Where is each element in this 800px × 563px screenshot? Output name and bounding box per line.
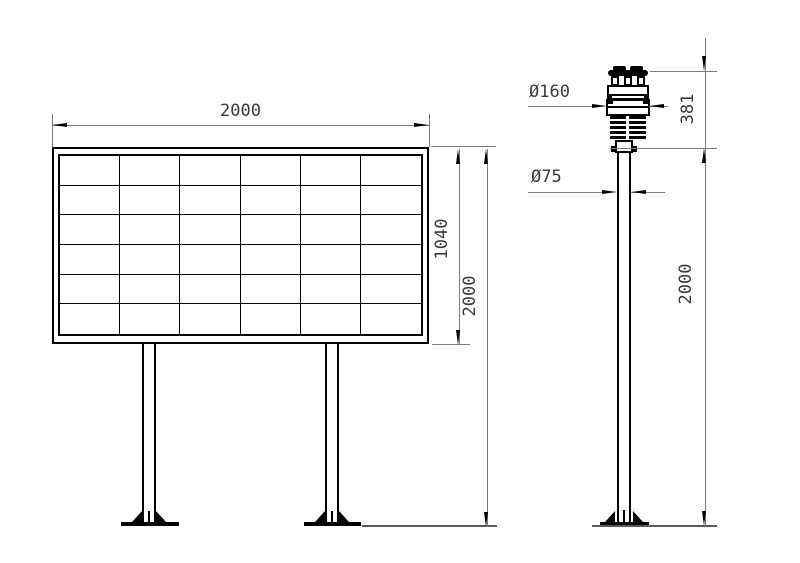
dim-arrow [702,56,706,71]
panel-grid-cell [301,156,361,186]
dim-extension-line [432,344,470,345]
panel-grid-cell [60,156,120,186]
dim-label-total-height: 2000 [461,264,479,328]
panel-grid-cell [241,186,301,216]
anchor-bolt [623,510,625,522]
dim-arrow [602,190,617,194]
sensor-tab [643,100,648,104]
sensor-tab [633,146,637,152]
anchor-bolt [148,511,150,522]
panel-grid-cell [60,275,120,305]
panel-grid-cell [241,245,301,275]
panel-grid-cell [180,186,240,216]
dim-line-sensor-pole [705,38,706,527]
ground-line [592,525,717,527]
panel-grid-cell [180,304,240,334]
panel-grid-cell [180,215,240,245]
louver-center-slot [626,116,629,140]
panel-grid-cell [301,215,361,245]
dim-label-sensor-diameter: Ø160 [529,83,570,101]
dim-extension-line [429,114,430,147]
panel-leg-left [142,344,156,523]
panel-grid-cell [241,156,301,186]
gusset [605,511,615,522]
dim-extension-line [650,71,717,72]
panel-grid-cell [361,275,421,305]
panel-grid-cell [120,275,180,305]
sensor-tab [608,100,613,104]
panel-grid-cell [361,215,421,245]
panel-grid-cell [120,156,180,186]
dim-leader-line [528,106,593,107]
gusset [132,511,142,522]
gusset [633,511,643,522]
base-plate-right [304,522,361,526]
dim-arrow [631,190,646,194]
panel-grid-cell [60,304,120,334]
panel-grid-cell [120,215,180,245]
dim-arrow [456,149,460,164]
panel-grid-cell [301,304,361,334]
panel-grid-cell [120,245,180,275]
dim-label-sensor-height: 381 [679,77,697,141]
panel-grid-cell [60,215,120,245]
ground-line [362,525,497,527]
dim-arrow [414,123,429,127]
sensor-pole [617,153,631,522]
dim-arrow [702,511,706,526]
dim-arrow [592,104,607,108]
panel-grid [58,154,423,336]
technical-drawing-canvas: 2000 1040 2000 [0,0,800,563]
panel-grid-cell [120,186,180,216]
dim-line-board-width [52,125,429,126]
panel-grid-cell [120,304,180,334]
sensor-body-upper [607,85,649,100]
gusset [315,511,325,522]
panel-grid-cell [60,186,120,216]
gusset [339,511,349,522]
sensor-neck [615,140,633,153]
dim-extension-line [610,148,717,149]
panel-grid-cell [241,304,301,334]
panel-grid-cell [301,245,361,275]
dim-arrow [484,149,488,164]
dim-arrow [456,330,460,345]
anchor-bolt [331,511,333,522]
dim-arrow [702,148,706,163]
panel-grid-cell [361,156,421,186]
dim-label-board-width: 2000 [52,102,429,120]
dim-label-pole-diameter: Ø75 [531,168,562,186]
panel-grid-cell [241,275,301,305]
dim-line-total-height [487,149,488,527]
dim-arrow [484,512,488,527]
gusset [156,511,166,522]
panel-grid-cell [301,186,361,216]
panel-grid-cell [180,275,240,305]
dim-arrow [649,104,664,108]
panel-grid-cell [60,245,120,275]
sensor-body-line [607,94,649,96]
panel-grid-cell [241,215,301,245]
panel-grid-cell [361,186,421,216]
dim-label-pole-height: 2000 [677,252,695,316]
sensor-tab [611,146,615,152]
panel-leg-right [325,344,339,523]
dim-label-board-height: 1040 [433,207,451,271]
dim-leader-line [528,192,603,193]
panel-grid-cell [301,275,361,305]
sensor-body-line [606,106,650,108]
dim-extension-line [431,146,496,147]
panel-grid-cell [180,156,240,186]
panel-grid-cell [180,245,240,275]
dim-arrow [52,123,67,127]
base-plate-left [121,522,179,526]
panel-grid-cell [361,304,421,334]
panel-grid-cell [361,245,421,275]
